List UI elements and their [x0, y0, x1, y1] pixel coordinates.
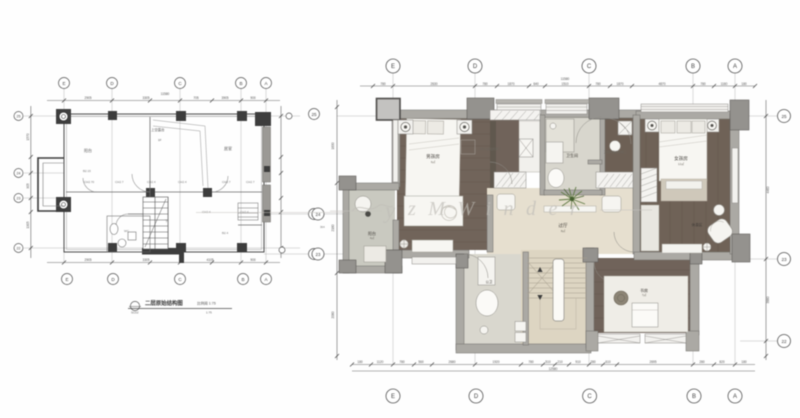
- svg-text:180: 180: [357, 360, 363, 364]
- svg-text:1920: 1920: [492, 360, 499, 364]
- svg-text:23: 23: [17, 197, 21, 201]
- svg-text:E: E: [391, 64, 395, 70]
- svg-text:25: 25: [17, 115, 21, 119]
- svg-text:640: 640: [533, 82, 539, 86]
- svg-text:180: 180: [741, 82, 747, 86]
- svg-text:1160: 1160: [721, 82, 728, 86]
- svg-text:22: 22: [17, 247, 21, 251]
- svg-text:23: 23: [781, 257, 787, 262]
- svg-text:阳台: 阳台: [84, 147, 92, 153]
- svg-text:E: E: [62, 81, 65, 86]
- svg-text:11580: 11580: [561, 77, 570, 81]
- svg-text:C: C: [587, 394, 592, 400]
- svg-text:12㎡: 12㎡: [678, 162, 684, 166]
- svg-text:2680: 2680: [448, 360, 455, 364]
- svg-text:卫生间选位检修口: 卫生间选位检修口: [604, 150, 627, 154]
- svg-text:210: 210: [557, 360, 563, 364]
- svg-text:WC: WC: [124, 229, 130, 233]
- svg-text:22: 22: [781, 339, 787, 344]
- svg-text:比例阅 1:75: 比例阅 1:75: [197, 301, 216, 306]
- svg-text:居室: 居室: [224, 145, 232, 151]
- svg-text:6㎡: 6㎡: [431, 160, 436, 164]
- svg-text:2180: 2180: [331, 224, 335, 231]
- svg-text:CH2.7: CH2.7: [115, 180, 124, 184]
- svg-text:1905: 1905: [26, 221, 30, 228]
- svg-text:E: E: [391, 394, 395, 400]
- svg-text:A: A: [733, 64, 737, 70]
- svg-text:1120: 1120: [377, 360, 384, 364]
- svg-text:180: 180: [741, 360, 747, 364]
- svg-text:4460: 4460: [766, 186, 770, 193]
- svg-text:2080: 2080: [331, 311, 335, 318]
- svg-text:下: 下: [165, 219, 168, 223]
- svg-text:1870: 1870: [616, 82, 623, 86]
- svg-text:780: 780: [528, 360, 534, 364]
- svg-text:B: B: [692, 394, 696, 400]
- svg-text:1F: 1F: [158, 138, 162, 142]
- svg-text:8㎡: 8㎡: [561, 229, 566, 233]
- svg-text:280: 280: [699, 360, 705, 364]
- svg-text:780: 780: [399, 360, 405, 364]
- svg-text:510: 510: [545, 360, 551, 364]
- svg-text:1:75: 1:75: [206, 311, 212, 315]
- svg-text:C: C: [587, 64, 592, 70]
- svg-text:7㎡: 7㎡: [642, 293, 647, 297]
- svg-text:B: B: [239, 81, 242, 86]
- svg-text:公卫: 公卫: [486, 280, 493, 284]
- svg-text:610: 610: [605, 360, 611, 364]
- svg-text:900: 900: [250, 258, 256, 262]
- svg-text:560: 560: [418, 360, 424, 364]
- svg-text:905: 905: [26, 183, 30, 189]
- svg-text:780: 780: [380, 82, 386, 86]
- svg-text:280: 280: [590, 360, 596, 364]
- svg-text:B2.15: B2.15: [83, 169, 91, 173]
- svg-text:910: 910: [575, 360, 581, 364]
- svg-text:11580: 11580: [161, 92, 170, 96]
- svg-text:820: 820: [719, 360, 725, 364]
- svg-text:CH2.4: CH2.4: [178, 180, 187, 184]
- svg-text:上空露台: 上空露台: [151, 127, 165, 132]
- svg-text:780: 780: [595, 82, 601, 86]
- svg-text:过厅: 过厅: [558, 222, 568, 229]
- svg-text:3880: 3880: [766, 296, 770, 303]
- svg-text:D: D: [473, 64, 478, 70]
- svg-text:CH2.4: CH2.4: [147, 180, 156, 184]
- svg-text:y: y: [383, 198, 396, 223]
- svg-text:卫生间选位检修口: 卫生间选位检修口: [479, 147, 502, 151]
- svg-text:2630: 2630: [430, 82, 437, 86]
- svg-text:SC02: SC02: [131, 311, 139, 315]
- svg-text:B: B: [241, 277, 244, 282]
- svg-text:364: 364: [320, 225, 325, 229]
- svg-text:2905: 2905: [84, 258, 91, 262]
- svg-text:1630: 1630: [331, 142, 335, 149]
- svg-text:3305: 3305: [142, 96, 149, 100]
- svg-text:B: B: [691, 64, 695, 70]
- svg-text:900: 900: [250, 96, 256, 100]
- svg-text:4105: 4105: [206, 258, 213, 262]
- svg-text:CH2.7: CH2.7: [222, 180, 231, 184]
- svg-text:CH2.70: CH2.70: [84, 180, 95, 184]
- svg-text:男孩房: 男孩房: [426, 153, 440, 160]
- svg-text:休息区: 休息区: [692, 222, 703, 227]
- svg-text:4870: 4870: [658, 82, 665, 86]
- svg-text:CH2.7: CH2.7: [246, 180, 255, 184]
- svg-text:女孩房: 女孩房: [674, 155, 688, 162]
- svg-text:1570: 1570: [26, 133, 30, 140]
- svg-text:1510: 1510: [561, 82, 568, 86]
- svg-text:24: 24: [17, 172, 21, 176]
- svg-text:卫生间: 卫生间: [566, 152, 578, 158]
- svg-text:CH2.4: CH2.4: [202, 210, 211, 214]
- svg-text:D: D: [474, 394, 479, 400]
- svg-text:705: 705: [193, 96, 199, 100]
- svg-text:CH2.4: CH2.4: [240, 210, 249, 214]
- svg-text:25: 25: [781, 114, 787, 119]
- svg-text:23: 23: [316, 252, 321, 257]
- svg-text:3905: 3905: [221, 96, 228, 100]
- svg-text:780: 780: [700, 82, 706, 86]
- svg-text:B2.4: B2.4: [222, 231, 229, 235]
- svg-text:4㎡: 4㎡: [370, 236, 375, 240]
- svg-text:A: A: [733, 394, 737, 400]
- svg-text:3305: 3305: [142, 258, 149, 262]
- svg-text:E: E: [65, 277, 68, 282]
- svg-text:12580: 12580: [549, 367, 558, 371]
- svg-text:2905: 2905: [84, 96, 91, 100]
- svg-text:1870: 1870: [507, 82, 514, 86]
- svg-text:780: 780: [482, 82, 488, 86]
- svg-text:zMWinder: zMWinder: [407, 198, 590, 220]
- svg-text:二层原始结构图: 二层原始结构图: [145, 299, 183, 307]
- svg-text:2695: 2695: [649, 360, 656, 364]
- svg-text:25: 25: [311, 112, 317, 117]
